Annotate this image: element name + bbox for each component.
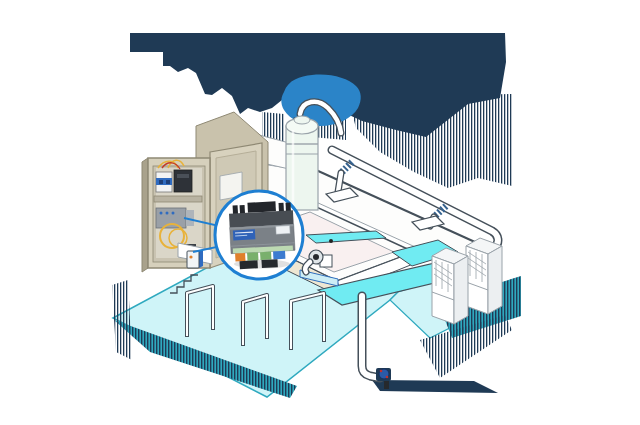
terminal-green-2 <box>260 252 271 261</box>
relay-dot-3 <box>172 212 175 215</box>
breaker-toggle-1 <box>159 180 163 184</box>
bottom-connector-2 <box>261 259 277 268</box>
sensor-led <box>189 255 192 258</box>
bottom-pump-dot-1 <box>380 370 383 373</box>
cabinet-side <box>142 158 148 272</box>
terminal-orange <box>235 253 245 262</box>
air-handling-unit-2 <box>466 238 502 314</box>
controller-connector-top <box>247 201 275 212</box>
air-handling-unit-1 <box>432 248 468 324</box>
relay-dot-2 <box>166 212 169 215</box>
shadow-left-edge <box>112 280 132 360</box>
screenshot-root <box>0 0 640 425</box>
tank-cap <box>294 116 310 124</box>
relay-dot-1 <box>160 212 163 215</box>
din-rail-cover <box>154 196 202 202</box>
tank-body <box>286 126 318 210</box>
ahu2-right-face <box>488 246 502 314</box>
callout <box>215 191 303 279</box>
bottom-pump-dot-2 <box>386 376 389 379</box>
breaker-toggle-2 <box>166 180 170 184</box>
ahu1-right-face <box>454 256 468 324</box>
contactor <box>174 170 192 192</box>
ahu1-left-face <box>432 256 454 324</box>
ahu2-left-face <box>466 246 488 314</box>
sensor-side <box>199 249 203 268</box>
bottom-pump-foot <box>384 381 389 389</box>
duct-branch-1 <box>338 173 341 192</box>
pump-impeller <box>313 254 319 260</box>
terminal-blue <box>273 251 285 260</box>
shadow-navy-wedge <box>372 380 498 393</box>
controller-label-white <box>276 226 290 235</box>
basin-dot <box>329 239 333 243</box>
bottom-connector-1 <box>239 260 257 269</box>
contactor-detail <box>177 174 189 178</box>
facility-illustration <box>0 0 640 425</box>
terminal-green-1 <box>247 252 258 261</box>
sensor-body <box>187 251 199 268</box>
